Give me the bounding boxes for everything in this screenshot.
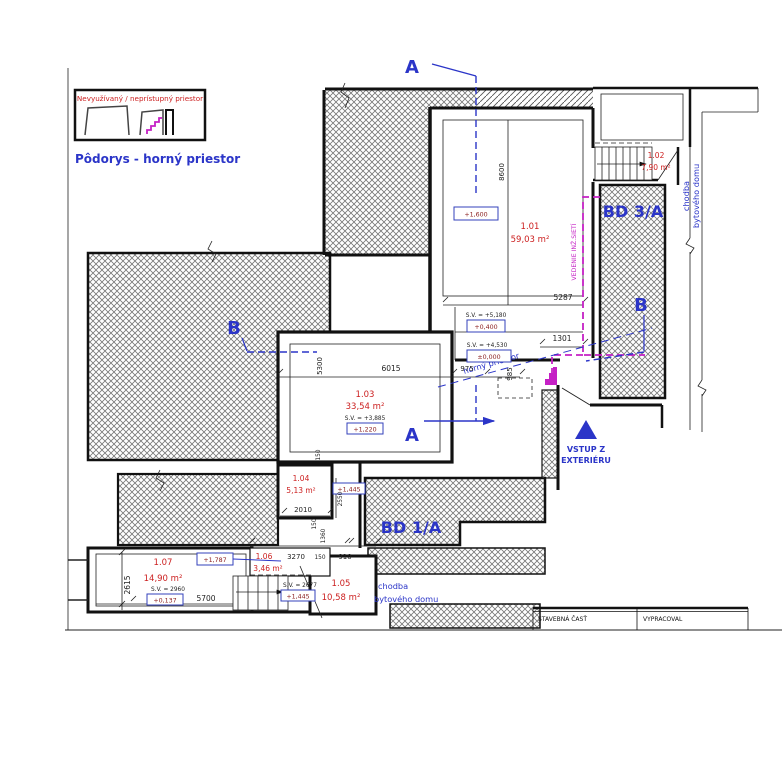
- room-105-number: 1.05: [332, 579, 351, 589]
- dim-975: 975: [460, 365, 473, 373]
- clear-height-2677: S.V. = 2677: [283, 583, 317, 589]
- dim-6015: 6015: [381, 364, 400, 373]
- clear-height-4530: S.V. = +4,530: [467, 343, 508, 349]
- entry-marker: VSTUP Z EXTERIÉRU: [561, 420, 611, 465]
- level-1445-stair: +1,445: [286, 594, 309, 601]
- room-107-clear-height: S.V. = 2960: [151, 587, 185, 593]
- dim-150-103: 150: [316, 449, 322, 460]
- dim-150-106: 150: [314, 555, 325, 561]
- dim-1360: 1360: [321, 528, 327, 543]
- dim-2010: 2010: [294, 506, 312, 514]
- corridor-bottom-label-line2: bytového domu: [374, 594, 438, 604]
- dim-2550: 2550: [338, 491, 344, 506]
- room-106-area: 3,46 m²: [253, 564, 282, 573]
- level-1220: +1,220: [353, 427, 376, 434]
- dim-5700: 5700: [196, 594, 215, 603]
- drawing-caption: Pôdorys - horný priestor: [75, 152, 240, 166]
- room-103-clear-height: S.V. = +3,885: [345, 416, 386, 422]
- dim-985: 985: [506, 367, 514, 380]
- corridor-bottom-label-line1: chodba: [378, 581, 408, 591]
- titleblock-col1: STAVEBNÁ ČASŤ: [538, 615, 587, 623]
- room-101-number: 1.01: [521, 222, 540, 232]
- room-104-area: 5,13 m²: [286, 486, 315, 495]
- utilities-route-label: VEDENIE INŽ.SIETÍ: [569, 223, 578, 280]
- title-block: STAVEBNÁ ČASŤ VYPRACOVAL: [533, 608, 748, 630]
- dim-5300: 5300: [316, 357, 324, 375]
- level-0137: +0,137: [153, 598, 176, 605]
- section-a-top-label: A: [405, 57, 419, 78]
- entry-label-line1: VSTUP Z: [567, 445, 606, 454]
- dim-3270: 3270: [287, 553, 305, 561]
- dim-5287: 5287: [553, 293, 572, 302]
- dim-1301: 1301: [552, 334, 571, 343]
- level-0400: +0,400: [474, 324, 497, 331]
- floor-plan-page: VEDENIE INŽ.SIETÍ A A B B horný priestor…: [0, 0, 782, 771]
- room-103-area: 33,54 m²: [346, 402, 385, 412]
- room-103-number: 1.03: [356, 390, 375, 400]
- entry-label-line2: EXTERIÉRU: [561, 454, 611, 465]
- legend-title: Nevyužívaný / neprístupný priestor: [77, 94, 203, 103]
- corridor-right-label-line2: bytového domu: [691, 164, 701, 228]
- room-102-number: 1.02: [648, 151, 665, 160]
- titleblock-col2: VYPRACOVAL: [643, 616, 683, 623]
- room-104-number: 1.04: [293, 474, 310, 483]
- room-101-area: 59,03 m²: [511, 235, 550, 245]
- utility-stair-symbol: [545, 367, 557, 385]
- level-0000: ±0,000: [477, 354, 500, 361]
- entry-arrow-icon: [575, 420, 597, 439]
- room-105-area: 10,58 m²: [322, 593, 361, 603]
- room-107-number: 1.07: [154, 558, 173, 568]
- dim-150-104: 150: [312, 518, 318, 529]
- section-b-left-label: B: [227, 318, 241, 339]
- corridor-right-label-line1: chodba: [681, 181, 691, 211]
- level-1787: +1,787: [203, 557, 226, 564]
- bd1a-label: BD 1/A: [381, 518, 442, 537]
- section-a-mid-label: A: [405, 425, 419, 446]
- dim-2615: 2615: [123, 575, 132, 594]
- staircase-bottom: [233, 576, 288, 610]
- room-102-area: 7,90 m²: [641, 163, 670, 172]
- level-1600: +1,600: [464, 212, 487, 219]
- dim-8600: 8600: [498, 163, 506, 181]
- section-b-right-label: B: [634, 295, 648, 316]
- floor-plan-drawing: VEDENIE INŽ.SIETÍ A A B B horný priestor…: [0, 0, 782, 771]
- room-107-area: 14,90 m²: [144, 574, 183, 584]
- dim-910: 910: [338, 553, 351, 561]
- clear-height-5180: S.V. = +5,180: [466, 313, 507, 319]
- legend: Nevyužívaný / neprístupný priestor Pôdor…: [75, 90, 240, 166]
- bd3a-label: BD 3/A: [603, 202, 664, 221]
